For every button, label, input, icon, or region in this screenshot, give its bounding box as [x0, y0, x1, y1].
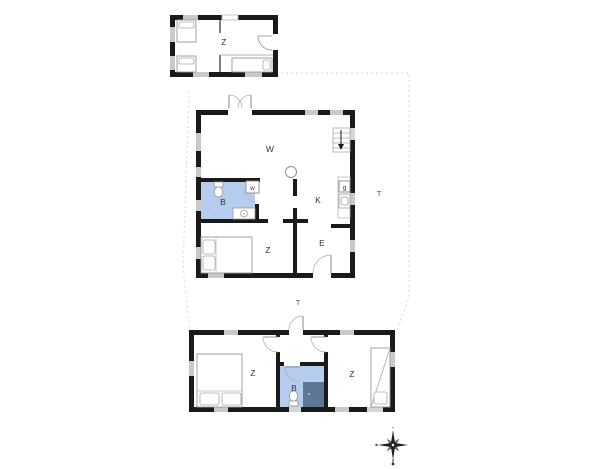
window [189, 361, 194, 376]
bed [201, 237, 252, 273]
pillow [263, 60, 270, 70]
window [305, 110, 318, 115]
outbuilding: Z B Z [189, 316, 395, 412]
window [390, 352, 395, 367]
door-gap [313, 273, 331, 278]
door-swing-arc [238, 95, 251, 108]
pillow [222, 393, 241, 405]
main-house-building: w g W B K Z E [196, 95, 355, 278]
pillow [179, 58, 194, 64]
stove-label: g [343, 185, 347, 192]
window [170, 56, 175, 70]
pillow [374, 392, 387, 404]
door-gap [289, 330, 303, 335]
interior-wall [324, 352, 328, 407]
window [214, 407, 228, 412]
terrace-label-center: T [296, 298, 301, 307]
pillow [179, 22, 194, 28]
interior-wall [255, 204, 259, 219]
room-label-bathroom: B [220, 197, 226, 207]
staircase [333, 128, 350, 152]
kitchen-counter: g [338, 177, 350, 218]
plot-boundary-west [183, 91, 190, 330]
room-label-entrance: E [319, 238, 325, 248]
annex-door-gap [273, 34, 278, 50]
room-label-bedroom: Z [265, 245, 270, 255]
toilet [289, 391, 298, 406]
interior-wall [300, 362, 324, 366]
room-label-annex-bedroom: Z [221, 37, 226, 47]
pillow [203, 256, 215, 270]
terrace-label-east: T [377, 189, 382, 198]
window [367, 407, 383, 412]
window [196, 167, 201, 177]
window [330, 110, 343, 115]
bed [177, 56, 196, 72]
window [196, 133, 201, 151]
interior-wall [280, 362, 284, 366]
outbuilding-entry-door [289, 316, 303, 335]
compass-rose-icon [375, 427, 408, 466]
door-gap [228, 110, 252, 115]
window [222, 15, 238, 20]
out-shower-dark [303, 382, 324, 407]
washing-machine-label: w [249, 185, 255, 192]
room-label-out-bathroom: B [291, 383, 297, 393]
window [350, 193, 355, 205]
window [208, 273, 224, 278]
room-label-living: W [266, 144, 274, 154]
room-label-kitchen: K [315, 195, 321, 205]
window [170, 27, 175, 42]
pillow [200, 393, 219, 405]
bed [197, 354, 242, 407]
shower [233, 208, 255, 219]
compass-center [391, 443, 394, 446]
interior-wall [283, 219, 308, 223]
room-label-out-bedroom-left: Z [250, 368, 255, 378]
window [196, 247, 201, 259]
window [224, 330, 238, 335]
bed [177, 20, 196, 42]
interior-wall [201, 219, 268, 223]
window [340, 330, 354, 335]
kitchen-sink [339, 194, 350, 208]
window [183, 15, 198, 20]
window [245, 72, 262, 77]
window [350, 128, 355, 140]
compass-south-dot [392, 463, 395, 466]
window [289, 407, 301, 412]
toilet [214, 182, 223, 197]
window [193, 72, 209, 77]
floorplan-canvas: Z [0, 0, 600, 469]
pillow [203, 240, 215, 254]
shower-drain-dot [308, 393, 310, 395]
door-swing-arc [289, 316, 303, 330]
window [350, 240, 355, 252]
interior-wall [331, 224, 350, 228]
washing-machine: w [246, 181, 259, 193]
window [196, 200, 201, 211]
stove-circle [286, 167, 297, 178]
annex-building: Z [170, 15, 278, 77]
bed [232, 58, 272, 72]
interior-wall [293, 208, 297, 273]
room-label-out-bedroom-right: Z [349, 369, 354, 379]
interior-wall [293, 179, 297, 196]
french-door [228, 95, 252, 115]
window [335, 407, 349, 412]
compass-north-dot [392, 427, 394, 429]
floorplan-drawing: Z [0, 0, 600, 469]
compass-west-dot [375, 444, 377, 446]
interior-wall [276, 352, 280, 407]
bunk-bed [371, 348, 390, 407]
